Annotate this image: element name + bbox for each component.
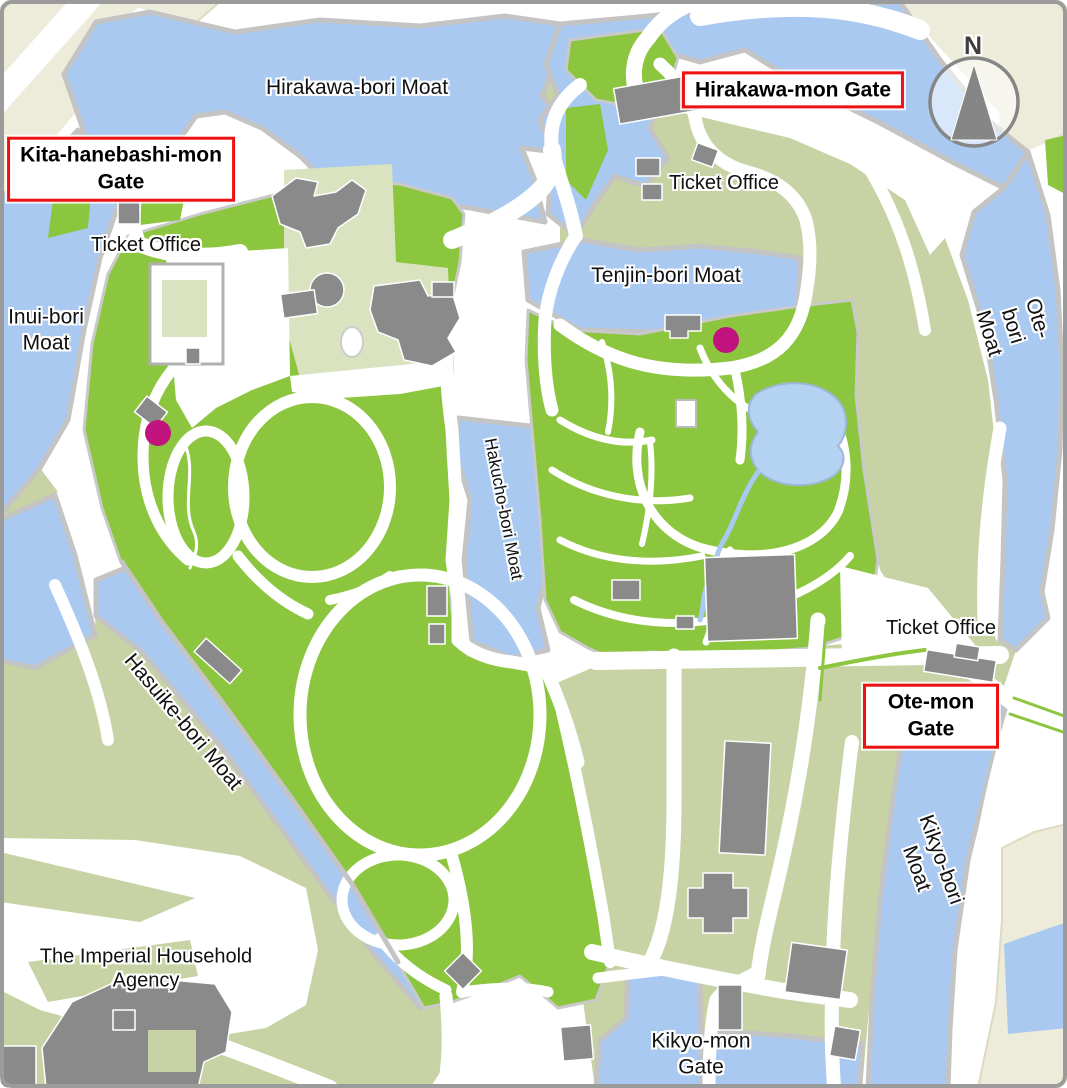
point-marker-east	[713, 327, 739, 353]
gate-box-kita-hanebashi-mon: Kita-hanebashi-mon Gate	[7, 137, 235, 202]
gate-box-hirakawa-mon: Hirakawa-mon Gate	[682, 71, 904, 108]
kita-hanebashi-mon-gate-building	[118, 198, 140, 224]
kikyo-mon-gate-building	[718, 985, 742, 1030]
imperial-palace-east-gardens-map: Hirakawa-bori Moat Tenjin-bori Moat Inui…	[0, 0, 1067, 1088]
point-marker-west	[145, 420, 171, 446]
ninomaru-pond	[749, 383, 846, 485]
gate-box-ote-mon: Ote-mon Gate	[863, 684, 999, 749]
compass	[930, 58, 1018, 146]
museum-building	[705, 554, 798, 641]
